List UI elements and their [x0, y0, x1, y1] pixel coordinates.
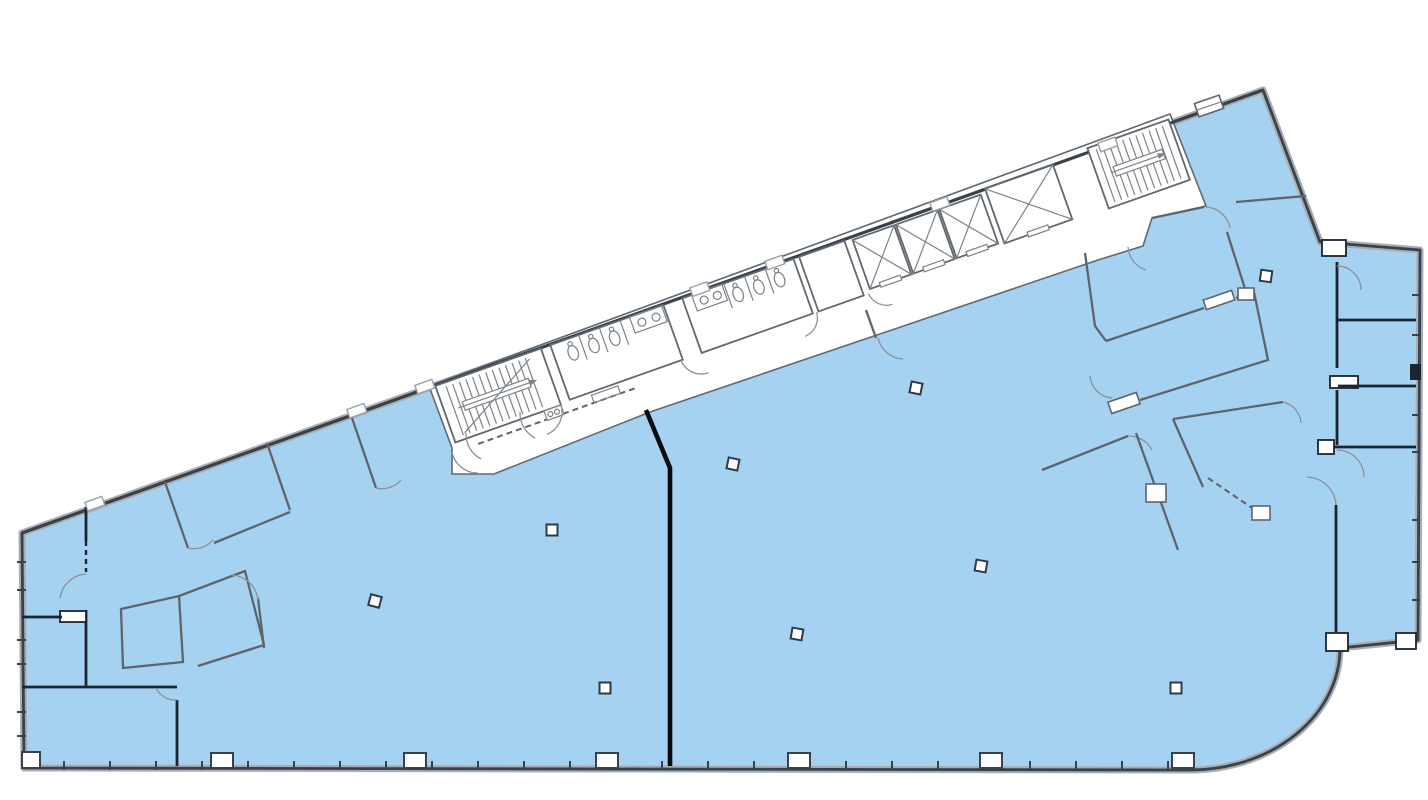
column	[1260, 270, 1272, 282]
column	[909, 381, 922, 394]
pilaster	[404, 753, 426, 768]
pilaster	[1172, 753, 1194, 768]
wall-block	[1410, 364, 1421, 380]
building-footprint	[22, 90, 1420, 770]
pilaster	[980, 753, 1002, 768]
floor-plan-svg	[0, 0, 1428, 800]
column	[1171, 683, 1182, 694]
floor-plan-canvas	[0, 0, 1428, 800]
column	[791, 628, 804, 641]
column	[975, 560, 988, 573]
column	[726, 457, 739, 470]
column	[368, 594, 381, 607]
column	[600, 683, 611, 694]
pilaster	[788, 753, 810, 768]
corner-block	[22, 752, 40, 768]
pilaster	[596, 753, 618, 768]
column	[547, 525, 558, 536]
pilaster	[211, 753, 233, 768]
